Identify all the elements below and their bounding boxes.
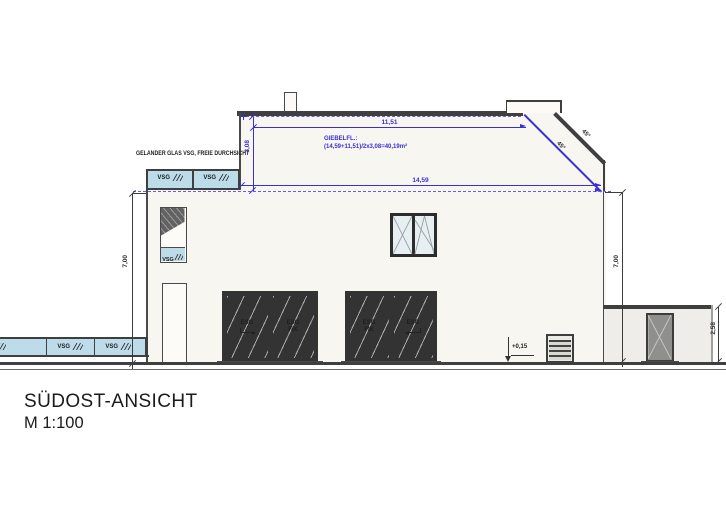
gable-area-formula: (14,59+11,51)/2x3,08=40,19m² (324, 144, 407, 152)
dim-lower-width-label: 14,59 (240, 177, 601, 184)
eave-dashed-line (133, 191, 611, 192)
gable-area-note: GIEBELFL.: (14,59+11,51)/2x3,08=40,19m² (324, 136, 407, 151)
stair-panel-text: VSG (162, 257, 174, 263)
railing-panel-1-text: VSG (157, 175, 170, 181)
vent-grille (546, 334, 574, 363)
glass-hatch-icon (174, 254, 183, 260)
door-panel-label: ESG (407, 320, 420, 327)
dim-annex-height-line (718, 307, 719, 363)
glass-band-post-2 (94, 339, 96, 355)
dim-upper-width-label: 11,51 (253, 119, 526, 126)
railing-post-left (146, 169, 148, 189)
fascia-vertical-edge (603, 160, 605, 191)
annex-roof-edge (603, 305, 713, 309)
stair-glazing-opening: VSG (160, 207, 187, 263)
roof-parapet (506, 100, 562, 113)
annex-door-symbol (648, 315, 671, 359)
upper-window (390, 213, 437, 257)
dim-right-height-label: 7,00 (613, 255, 620, 268)
chimney (284, 92, 297, 113)
dim-lower-width-line (240, 185, 601, 186)
level-marker-text: +0,15 (512, 344, 527, 350)
dim-left-height-line (132, 193, 133, 370)
lower-roof-edge (146, 188, 240, 191)
door-panel-label: ESG FIX (285, 320, 301, 333)
level-marker-underline (511, 355, 534, 356)
glass-hatch-icon (218, 174, 229, 181)
slide-direction-left-icon (406, 328, 421, 333)
stair-vsg-panel: VSG (161, 247, 185, 261)
glass-hatch-icon (72, 343, 83, 350)
gable-top-dashed-line (241, 116, 521, 117)
dim-arrow-icon (595, 188, 601, 192)
glass-band-label-2: VSG (50, 343, 90, 350)
glass-hatch-icon (0, 343, 6, 350)
gable-top-dash-tick2 (240, 116, 247, 117)
ground-line-lower (0, 369, 726, 370)
railing-panel-label-1: VSG (150, 174, 190, 181)
door-panel: ESG FIX (348, 294, 391, 360)
elevation-drawing: VSG VSG GELÄNDER GLAS VSG, FREIE DURCHSI… (0, 0, 726, 510)
railing-post-mid (192, 171, 194, 188)
railing-panel-label-2: VSG (196, 174, 236, 181)
ground-line (0, 362, 726, 365)
dim-left-height-cap (132, 193, 146, 194)
door-panel: ESG FIX (271, 294, 316, 360)
railing-panel-2-text: VSG (203, 175, 216, 181)
band-panel-2-text: VSG (57, 344, 70, 350)
slide-direction-right-icon (240, 328, 255, 333)
railing-note: GELÄNDER GLAS VSG, FREIE DURCHSICHT (136, 151, 249, 157)
glass-hatch-icon (120, 343, 131, 350)
window-opening-symbol (393, 216, 434, 254)
band-panel-3-text: VSG (105, 344, 118, 350)
drawing-scale: M 1:100 (24, 414, 84, 433)
sliding-door-unit-left: ESG ESG FIX (222, 291, 318, 362)
glass-band-post-end (145, 337, 148, 357)
door-panel-label: ESG FIX (361, 320, 377, 333)
dim-left-height-label: 7,00 (122, 255, 129, 268)
door-panel-label: ESG (241, 320, 254, 327)
glass-hatch-icon (172, 174, 183, 181)
dim-right-height-line (622, 192, 623, 367)
dim-upper-width-line (253, 127, 526, 128)
entry-door (162, 283, 187, 363)
glass-band-label-1: VSG (0, 343, 13, 350)
page-title: SÜDOST-ANSICHT (24, 391, 197, 413)
dim-gable-height-label: 3,08 (244, 140, 251, 153)
annex-door (646, 313, 674, 362)
stair-dark-shape (161, 208, 185, 237)
vent-slats (549, 340, 571, 360)
glass-band-post-1 (46, 339, 48, 355)
sliding-door-unit-right: ESG FIX ESG (345, 291, 437, 362)
door-panel: ESG (392, 294, 435, 360)
door-panel: ESG (225, 294, 270, 360)
glass-band-bottom-rail (0, 355, 149, 357)
gable-area-label: GIEBELFL.: (324, 136, 407, 144)
dim-annex-height-label: 2,58 (710, 322, 717, 335)
